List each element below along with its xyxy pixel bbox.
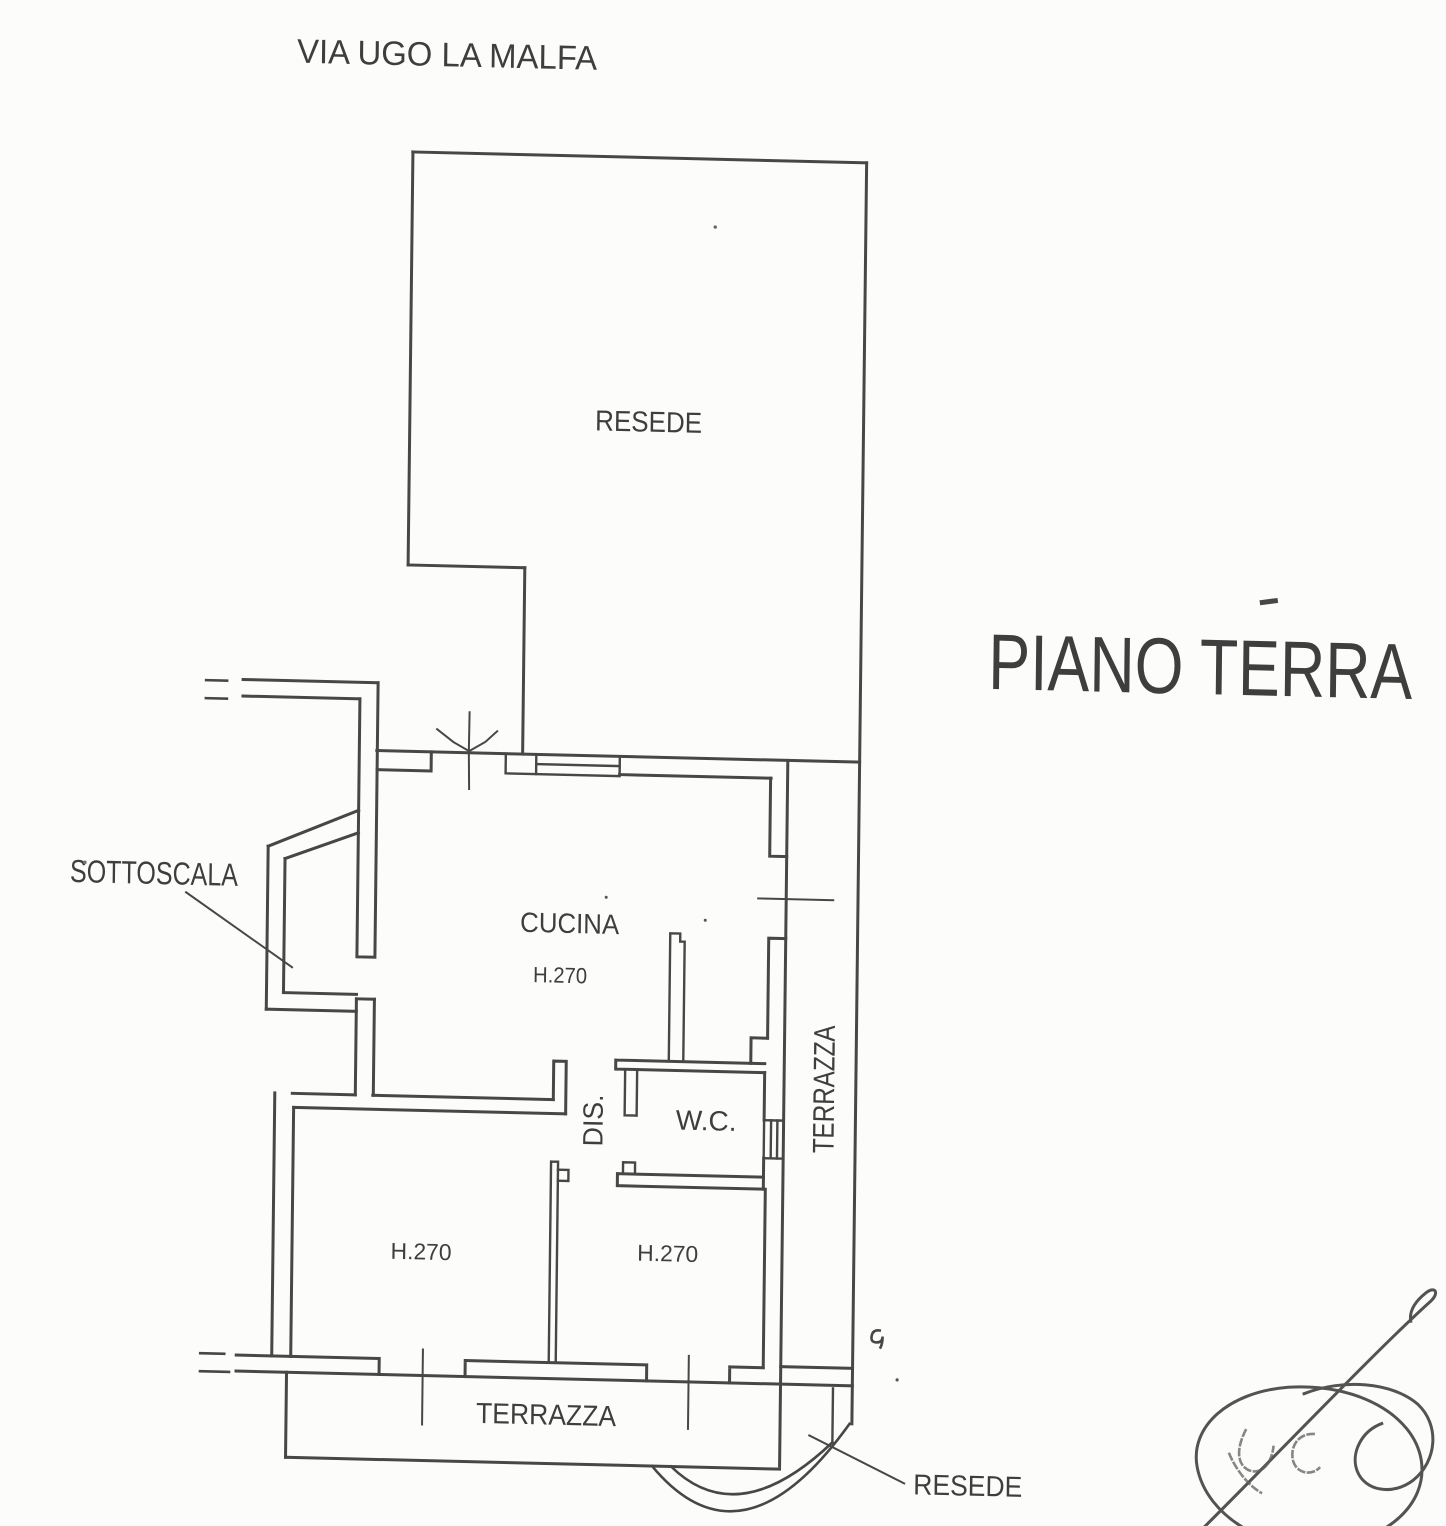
svg-text:RESEDE: RESEDE: [913, 1469, 1022, 1504]
svg-text:H.270: H.270: [390, 1238, 451, 1265]
svg-text:H.270: H.270: [533, 962, 587, 988]
svg-text:TERRAZZA: TERRAZZA: [476, 1398, 617, 1433]
svg-text:H.270: H.270: [637, 1240, 698, 1267]
svg-text:VIA UGO LA MALFA: VIA UGO LA MALFA: [297, 33, 598, 78]
svg-text:CUCINA: CUCINA: [520, 907, 620, 940]
svg-text:W.C.: W.C.: [676, 1105, 737, 1137]
svg-text:TERRAZZA: TERRAZZA: [807, 1025, 841, 1154]
svg-text:PIANO TERRA: PIANO TERRA: [988, 617, 1413, 716]
svg-text:SOTTOSCALA: SOTTOSCALA: [70, 853, 239, 893]
svg-text:RESEDE: RESEDE: [595, 405, 702, 440]
svg-text:DIS.: DIS.: [577, 1094, 609, 1147]
